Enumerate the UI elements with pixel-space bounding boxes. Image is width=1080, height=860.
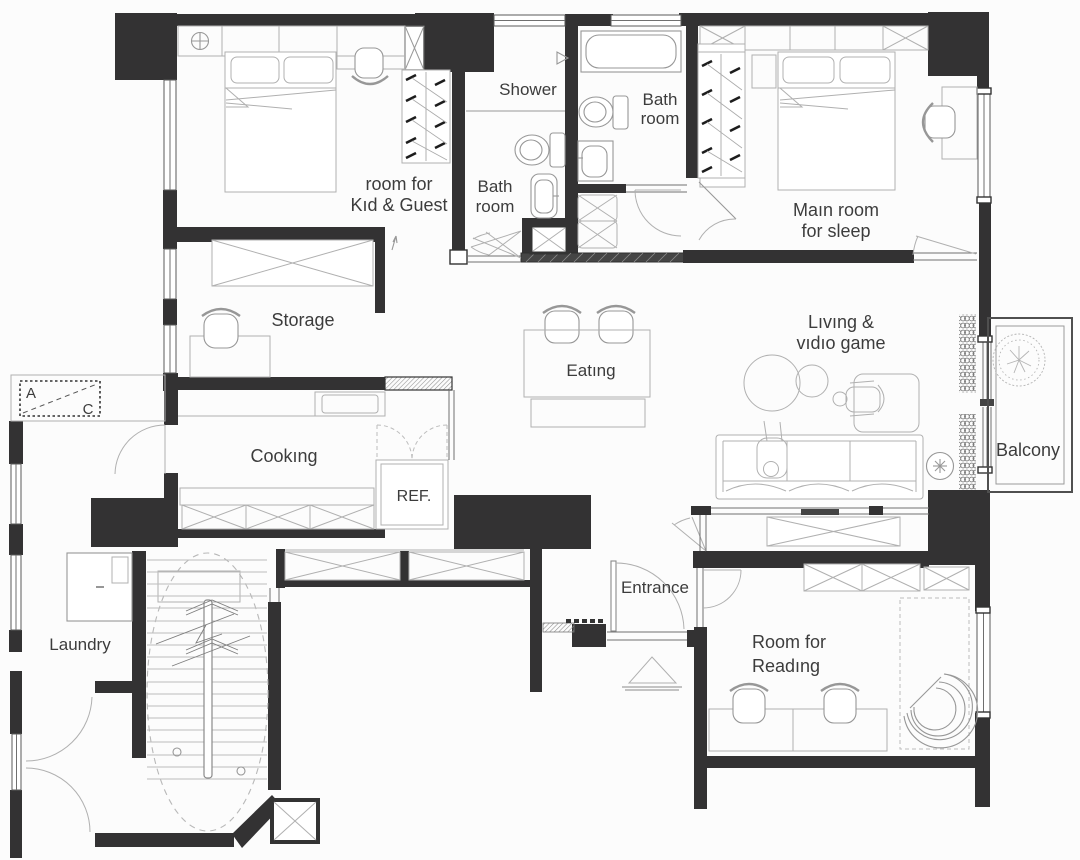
svg-text:A: A <box>26 385 36 402</box>
svg-text:for sleep: for sleep <box>801 221 870 241</box>
svg-text:Kıd & Guest: Kıd & Guest <box>350 195 447 215</box>
svg-text:Storage: Storage <box>271 310 334 330</box>
svg-text:REF.: REF. <box>397 488 432 505</box>
svg-text:Maın room: Maın room <box>793 200 879 220</box>
svg-text:room: room <box>641 109 680 128</box>
svg-text:Eatıng: Eatıng <box>566 361 615 380</box>
svg-text:Bath: Bath <box>643 90 678 109</box>
svg-text:vıdıo game: vıdıo game <box>796 333 885 353</box>
svg-text:Cookıng: Cookıng <box>250 446 317 466</box>
svg-text:Bath: Bath <box>478 177 513 196</box>
svg-text:Entrance: Entrance <box>621 578 689 597</box>
svg-text:room: room <box>476 197 515 216</box>
svg-text:C: C <box>83 401 94 418</box>
svg-text:Room for: Room for <box>752 632 826 652</box>
svg-text:room for: room for <box>365 174 432 194</box>
svg-text:Shower: Shower <box>499 80 557 99</box>
svg-text:Lıvıng &: Lıvıng & <box>808 312 874 332</box>
svg-text:Balcony: Balcony <box>996 440 1060 460</box>
svg-text:Readıng: Readıng <box>752 656 820 676</box>
svg-text:Laundry: Laundry <box>49 635 111 654</box>
